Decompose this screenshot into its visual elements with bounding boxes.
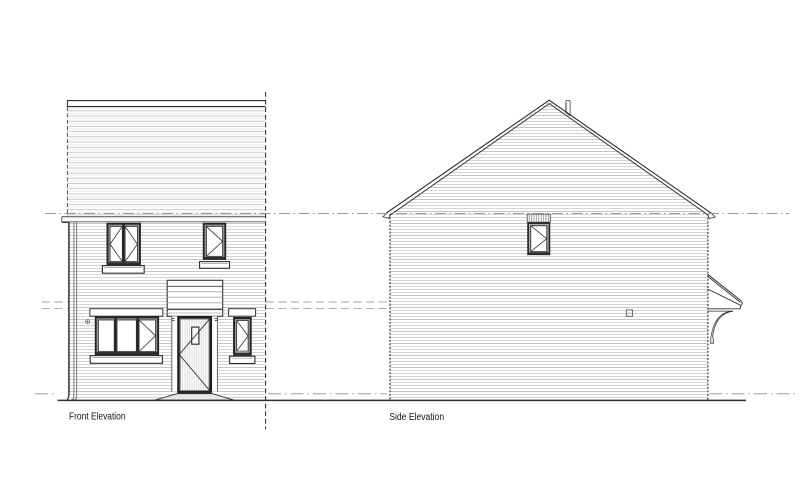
svg-text:Front Elevation: Front Elevation bbox=[69, 412, 126, 423]
svg-text:Side Elevation: Side Elevation bbox=[389, 412, 444, 423]
